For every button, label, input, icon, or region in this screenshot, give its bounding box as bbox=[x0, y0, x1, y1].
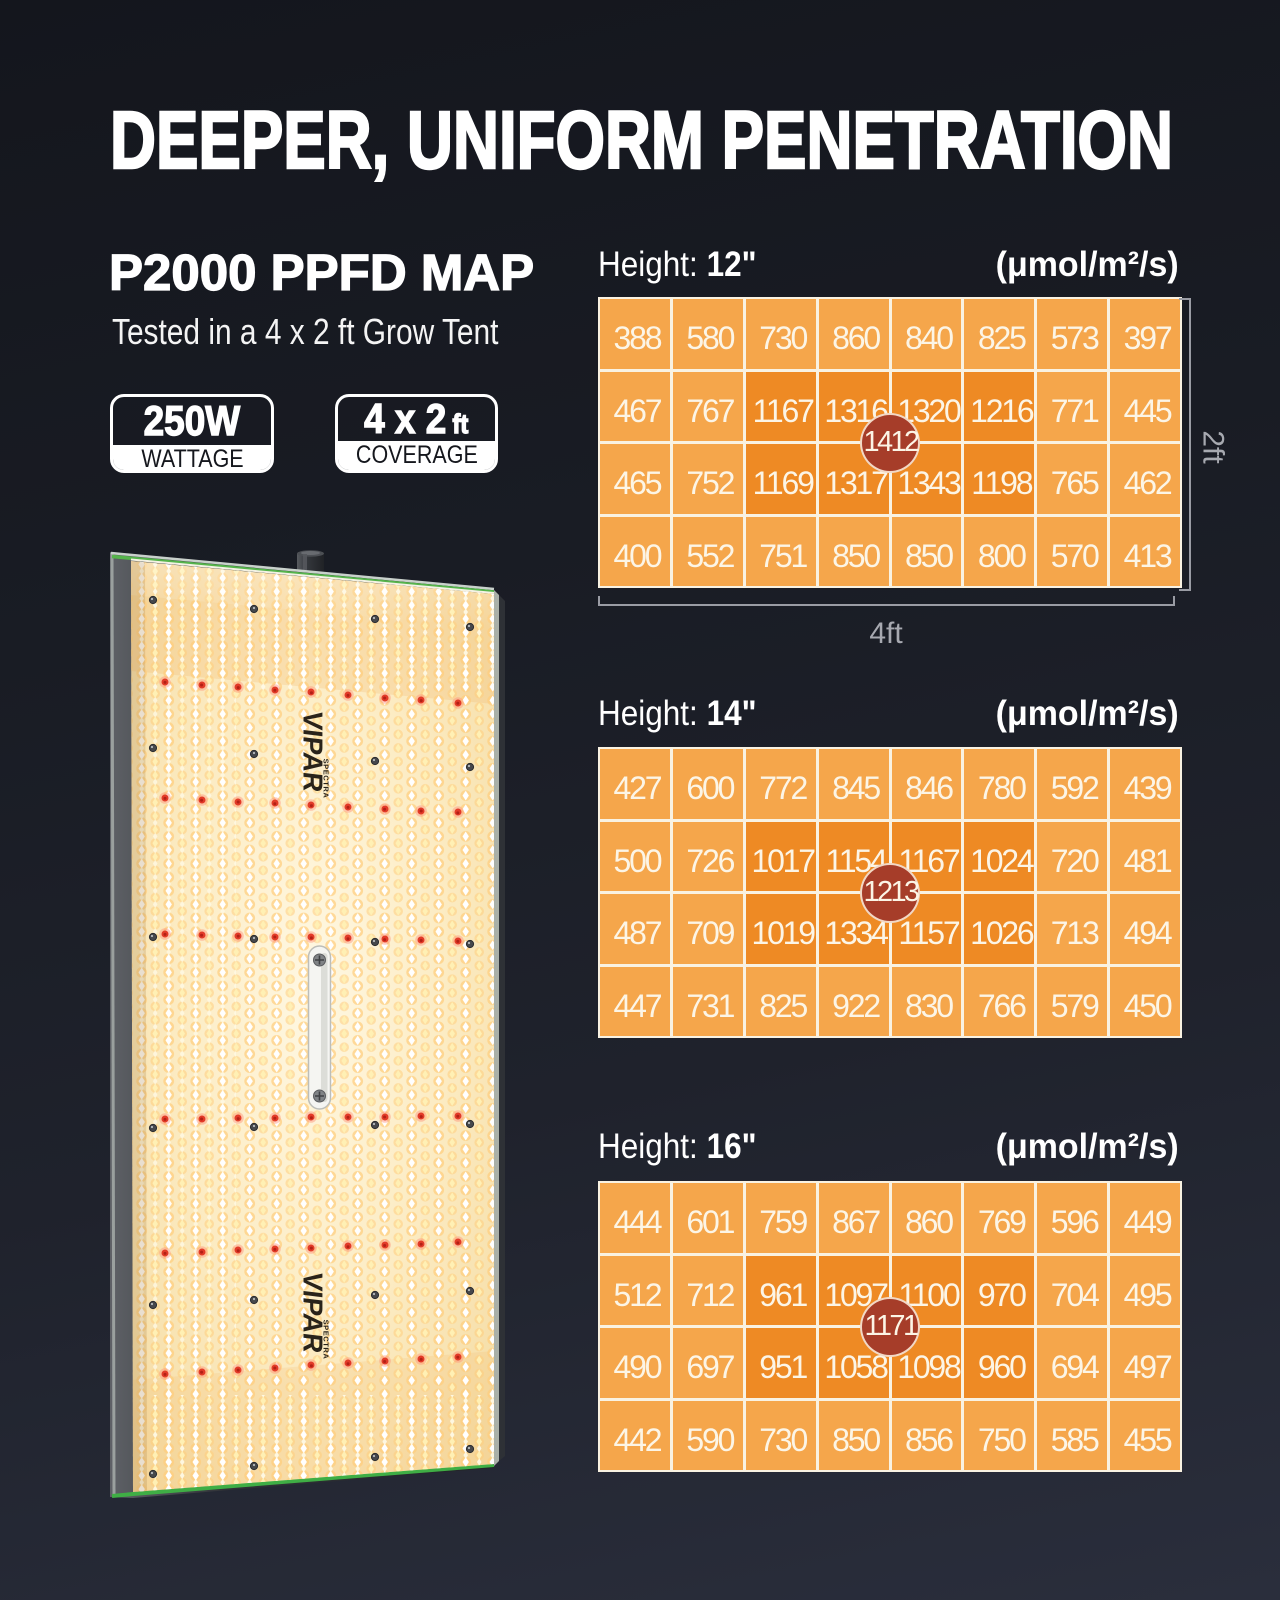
svg-text:SPECTRA: SPECTRA bbox=[322, 759, 331, 799]
svg-text:SPECTRA: SPECTRA bbox=[322, 1320, 331, 1360]
